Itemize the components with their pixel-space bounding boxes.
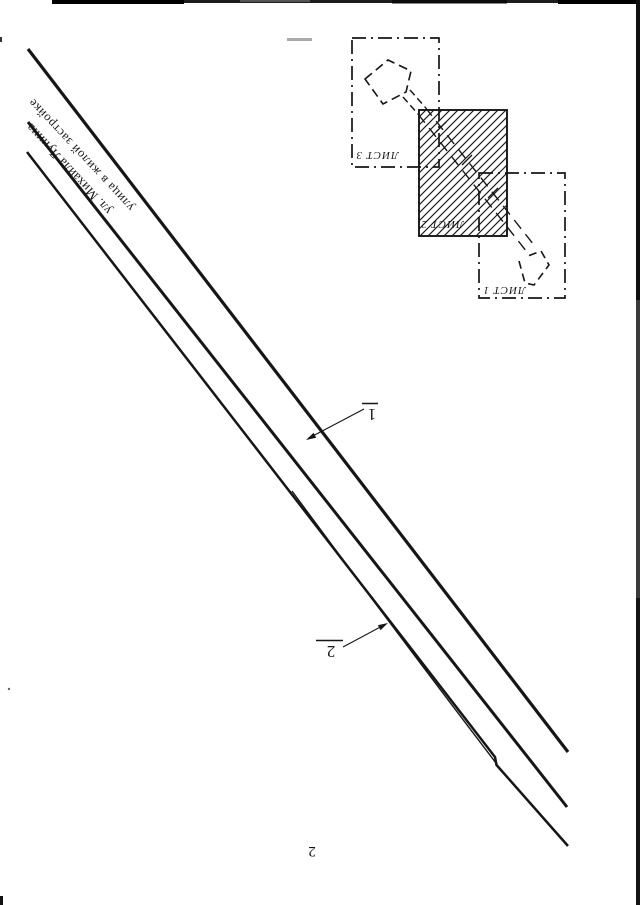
scan-edge-top-blob-left xyxy=(52,0,184,4)
callout-1: 1 xyxy=(306,404,378,441)
sheet-key-inset: ЛИСТ 3 ЛИСТ 2 ЛИСТ 1 xyxy=(352,38,565,298)
sheet-2-outline xyxy=(419,110,507,236)
callout-1-arrowhead-icon xyxy=(306,433,316,440)
scan-edge-right-dark-top xyxy=(636,0,640,300)
sheet-2-label: ЛИСТ 2 xyxy=(420,218,464,230)
scan-smudge xyxy=(287,38,312,41)
sliver-feature-line xyxy=(292,491,496,763)
scanned-drawing-page: улица в жилой застройке ул. Михаила Луни… xyxy=(0,0,640,905)
callout-1-label: 1 xyxy=(368,405,377,424)
scan-edge-right-dark-bottom xyxy=(636,598,640,905)
scan-edge-top-faint xyxy=(240,0,310,2)
scan-edge-top-blob-mid xyxy=(392,0,507,4)
scan-dot xyxy=(8,688,10,690)
scan-mark-left xyxy=(0,37,2,42)
sheet-1-label: ЛИСТ 1 xyxy=(482,284,526,296)
sheet-3-label: ЛИСТ 3 xyxy=(355,149,399,161)
scan-mark-bottom-left xyxy=(0,896,3,905)
callout-2: 2 xyxy=(316,623,388,661)
road-neck-line-a xyxy=(403,97,418,114)
road-neck-line-b xyxy=(410,90,425,107)
street-description-label: улица в жилой застройке xyxy=(25,96,137,214)
page-number: 2 xyxy=(308,843,316,859)
scan-edge-top-blob-right xyxy=(558,0,640,4)
callout-2-arrowhead-icon xyxy=(378,623,388,630)
callout-2-label: 2 xyxy=(327,642,336,661)
road-end-shape-sheet1 xyxy=(519,251,549,285)
